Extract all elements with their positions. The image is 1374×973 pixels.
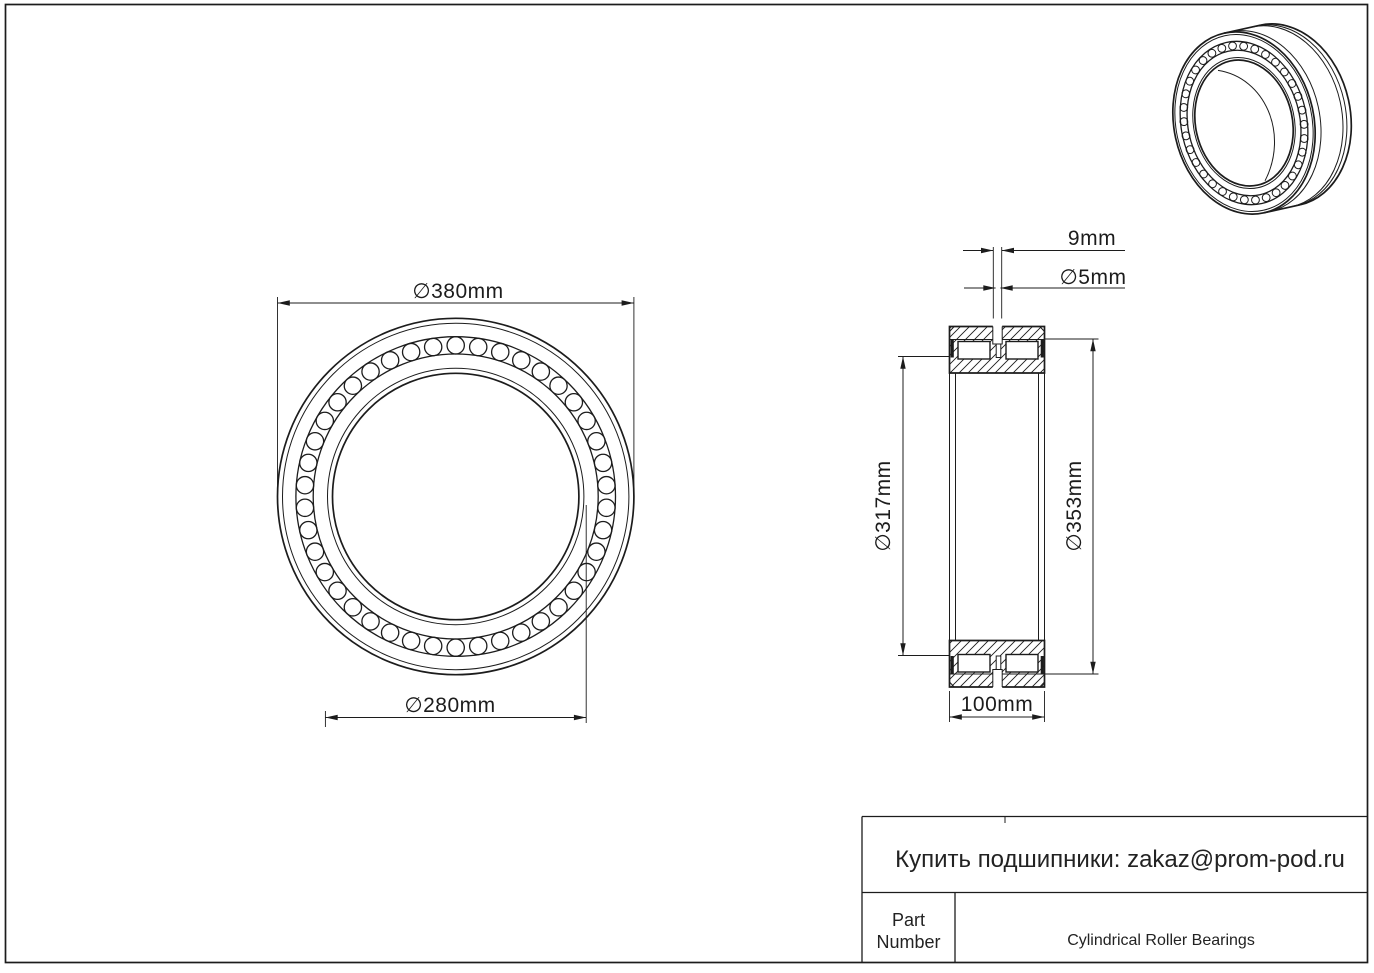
lubrication-groove (993, 670, 1002, 688)
roller-section (1006, 342, 1038, 360)
groove-width-label: 9mm (1068, 227, 1116, 250)
side-recess (951, 340, 954, 358)
roller-section (1006, 655, 1038, 673)
section-top-block (950, 326, 1045, 373)
dimension-width: 100mm (950, 691, 1045, 722)
side-recess (951, 656, 954, 674)
part-number-label-line2: Number (876, 932, 940, 952)
drawing-canvas: ∅380mm ∅280mm (0, 0, 1374, 973)
contact-text: Купить подшипники: zakaz@prom-pod.ru (895, 846, 1345, 873)
hole-diameter-label: ∅5mm (1060, 266, 1127, 289)
lubrication-hole (996, 656, 1001, 670)
part-number-label-line1: Part (892, 910, 925, 930)
lubrication-hole (996, 344, 1001, 358)
side-recess (1041, 656, 1044, 674)
lubrication-groove (993, 326, 1002, 344)
inner-raceway-label: ∅317mm (872, 460, 895, 551)
bearing-type-text: Cylindrical Roller Bearings (1067, 932, 1255, 949)
outer-raceway-label: ∅353mm (1063, 460, 1086, 551)
roller-section (958, 655, 990, 673)
roller-section (958, 342, 990, 360)
bore-diameter-label: ∅280mm (404, 694, 495, 717)
width-label: 100mm (961, 693, 1034, 716)
side-recess (1041, 340, 1044, 358)
outer-diameter-label: ∅380mm (412, 280, 503, 303)
section-bottom-block (950, 641, 1045, 688)
page-background (0, 0, 1374, 973)
